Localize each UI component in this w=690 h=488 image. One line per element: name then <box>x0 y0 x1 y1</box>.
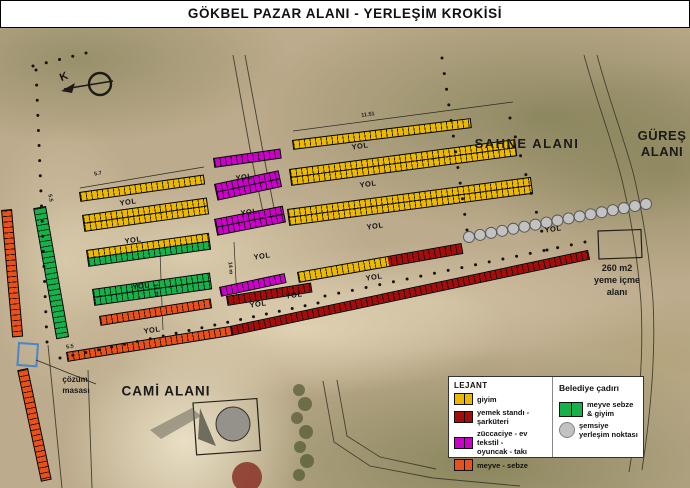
market-layout-screenshot: GÖKBEL PAZAR ALANI - YERLEŞİM KROKİSİ <box>0 0 690 488</box>
legend-title: LEJANT <box>454 381 549 390</box>
legend-item-label: züccaciye - ev tekstil - oyuncak - takı <box>477 429 549 456</box>
legend-item-label: şemsiye yerleşim noktası <box>579 421 638 439</box>
legend-item-giyim: giyim <box>454 393 549 405</box>
legend: LEJANT giyim yemek standı - şarküteri zü… <box>448 376 644 458</box>
legend-item-label: meyve sebze & giyim <box>587 400 640 418</box>
legend-panel-belediye: Belediye çadırı meyve sebze & giyim şems… <box>553 377 643 457</box>
page-title: GÖKBEL PAZAR ALANI - YERLEŞİM KROKİSİ <box>0 0 690 28</box>
zuccaciye-swatch-icon <box>454 437 473 449</box>
legend-panel-lejant: LEJANT giyim yemek standı - şarküteri zü… <box>449 377 553 457</box>
legend-item-yemek-standi: yemek standı - şarküteri <box>454 408 549 426</box>
legend-belediye-title: Belediye çadırı <box>559 383 640 393</box>
yemek-standi-swatch-icon <box>454 411 473 423</box>
legend-item-semsiye: şemsiye yerleşim noktası <box>559 421 640 439</box>
umbrella-point-icon <box>559 422 575 438</box>
legend-item-meyve-sebze-giyim: meyve sebze & giyim <box>559 400 640 418</box>
meyve-sebze-swatch-icon <box>454 459 473 471</box>
legend-item-meyve-sebze: meyve - sebze <box>454 459 549 471</box>
meyve-sebze-giyim-swatch-icon <box>559 402 583 417</box>
legend-item-label: yemek standı - şarküteri <box>477 408 529 426</box>
legend-item-zuccaciye: züccaciye - ev tekstil - oyuncak - takı <box>454 429 549 456</box>
legend-item-label: giyim <box>477 395 497 404</box>
giyim-swatch-icon <box>454 393 473 405</box>
legend-item-label: meyve - sebze <box>477 461 528 470</box>
